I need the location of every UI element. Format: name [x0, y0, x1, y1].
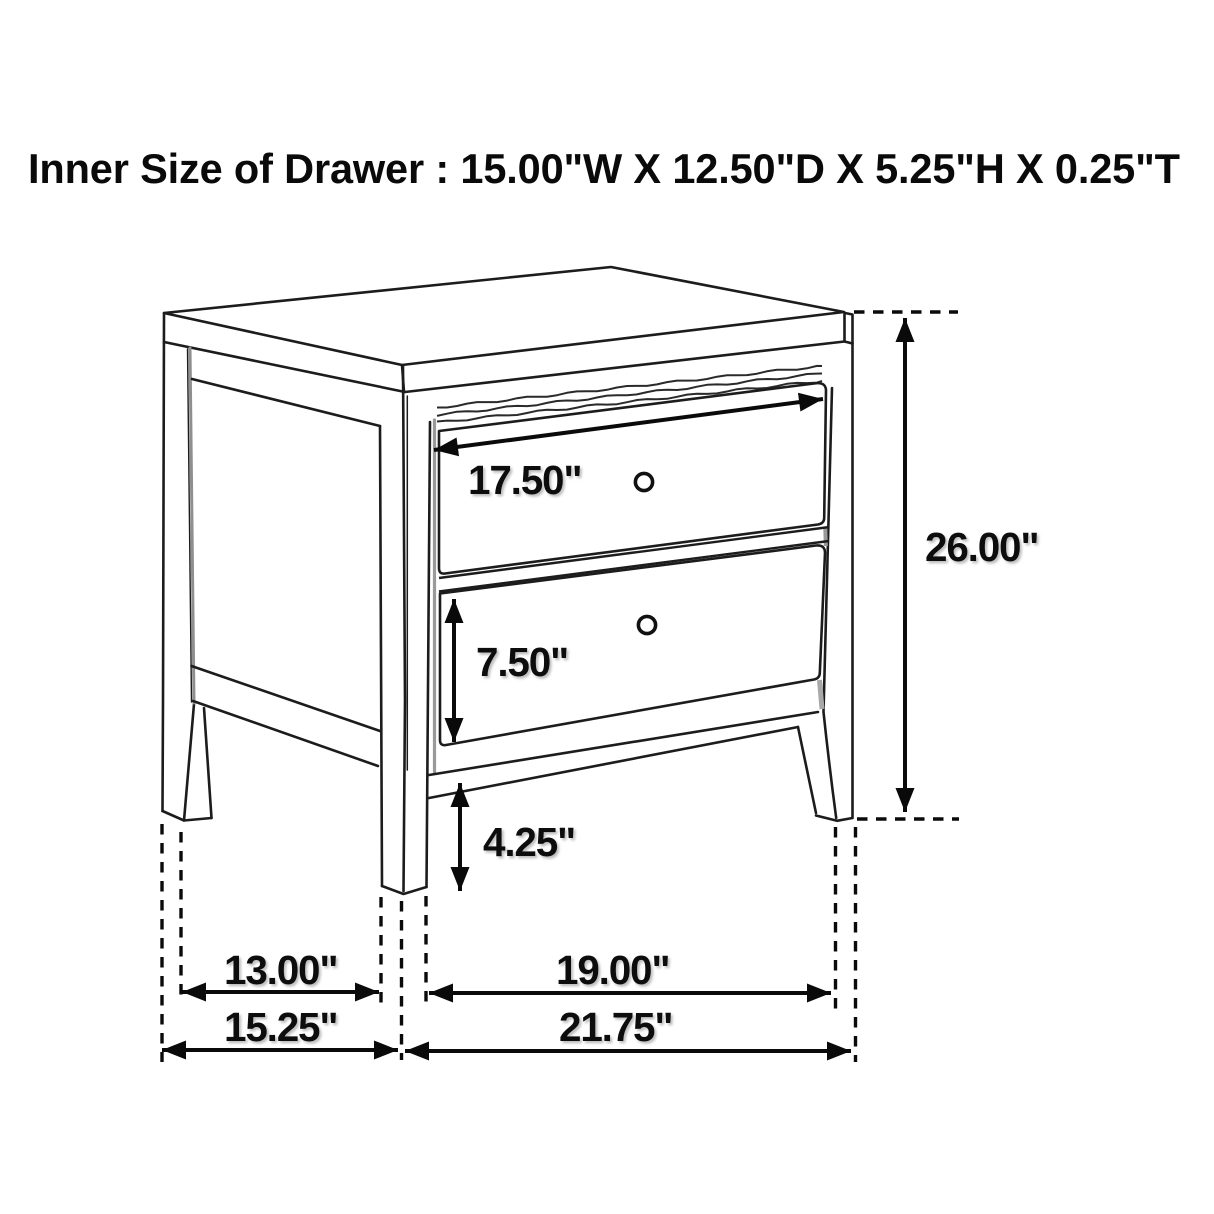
- svg-text:4.25": 4.25": [483, 819, 575, 865]
- svg-text:26.00": 26.00": [925, 524, 1038, 570]
- svg-text:7.50": 7.50": [476, 639, 568, 685]
- svg-text:13.00": 13.00": [224, 947, 337, 993]
- svg-text:17.50": 17.50": [468, 457, 581, 503]
- svg-text:19.00": 19.00": [556, 947, 669, 993]
- svg-text:21.75": 21.75": [559, 1004, 672, 1050]
- svg-text:15.25": 15.25": [224, 1004, 337, 1050]
- svg-text:Inner Size of Drawer : 15.00"W: Inner Size of Drawer : 15.00"W X 12.50"D…: [28, 145, 1180, 192]
